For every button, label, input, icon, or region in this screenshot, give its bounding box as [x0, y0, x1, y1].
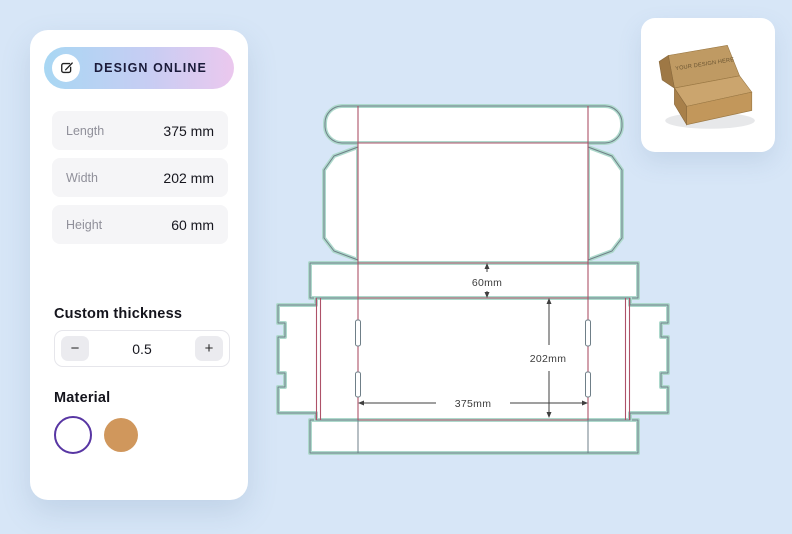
- material-heading: Material: [54, 390, 110, 406]
- height-field[interactable]: Height 60 mm: [52, 205, 228, 244]
- custom-thickness-heading: Custom thickness: [54, 306, 182, 322]
- material-swatch-white[interactable]: [54, 416, 92, 454]
- thickness-value[interactable]: 0.5: [132, 341, 151, 357]
- front-panel-strip: [310, 420, 638, 453]
- width-dimension-label: 202mm: [530, 353, 567, 365]
- width-label: Width: [66, 171, 98, 185]
- lid-panel: [358, 143, 588, 263]
- edit-icon: [52, 54, 80, 82]
- thickness-decrement-button[interactable]: −: [61, 336, 89, 361]
- length-label: Length: [66, 124, 104, 138]
- width-field[interactable]: Width 202 mm: [52, 158, 228, 197]
- length-dimension-label: 375mm: [455, 398, 492, 410]
- length-value: 375 mm: [163, 123, 214, 139]
- height-dimension-label: 60mm: [472, 277, 502, 289]
- height-value: 60 mm: [171, 217, 214, 233]
- thickness-stepper: − 0.5 +: [54, 330, 230, 367]
- dimension-fields: Length 375 mm Width 202 mm Height 60 mm: [52, 111, 228, 252]
- lid-wing-left: [324, 147, 358, 260]
- width-value: 202 mm: [163, 170, 214, 186]
- material-swatches: [54, 416, 138, 454]
- design-online-label: DESIGN ONLINE: [94, 61, 207, 75]
- tuck-flap: [325, 106, 622, 143]
- options-sidebar: DESIGN ONLINE Length 375 mm Width 202 mm…: [30, 30, 248, 500]
- thickness-increment-button[interactable]: +: [195, 336, 223, 361]
- height-label: Height: [66, 218, 102, 232]
- dieline-canvas: 60mm 202mm 375mm: [260, 92, 690, 472]
- page: DESIGN ONLINE Length 375 mm Width 202 mm…: [0, 0, 792, 534]
- length-field[interactable]: Length 375 mm: [52, 111, 228, 150]
- material-swatch-kraft[interactable]: [104, 418, 138, 452]
- design-online-button[interactable]: DESIGN ONLINE: [44, 47, 234, 89]
- lid-wing-right: [588, 147, 622, 260]
